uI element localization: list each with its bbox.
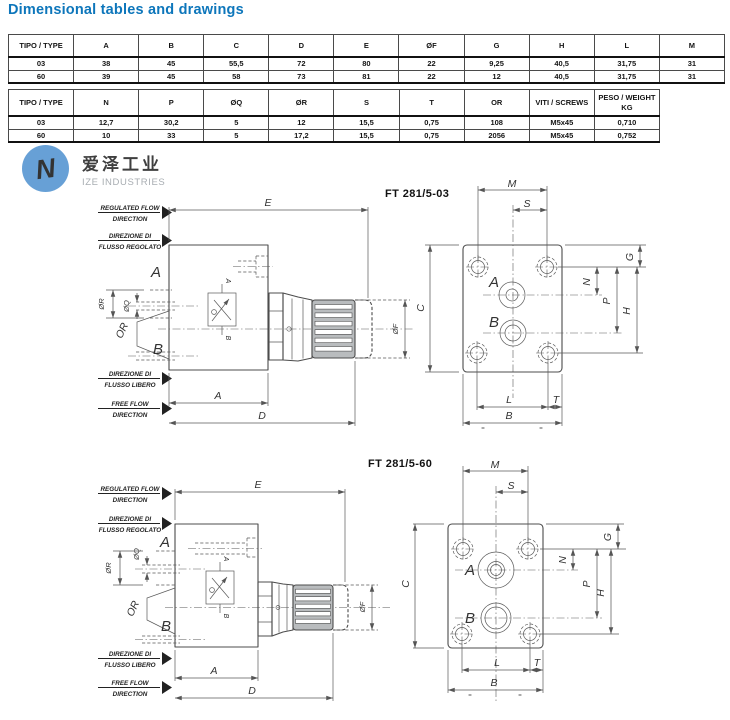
drawing-ft281-5-60: FT 281/5-60 REGULATED FLOW DIRECTION DIR… (0, 450, 730, 720)
dim-label-d: D (258, 410, 266, 422)
svg-text:DIRECTION: DIRECTION (113, 497, 148, 504)
dim-label-g: G (624, 253, 636, 261)
table-cell: 03 (9, 57, 74, 70)
flow-arrow-icon (162, 517, 172, 530)
table-cell: 38 (74, 57, 139, 70)
dim-label-m: M (491, 459, 500, 471)
table-cell: 22 (399, 57, 464, 70)
column-header: ØR (269, 90, 334, 117)
table-cell: 0,752 (594, 129, 659, 142)
flow-arrow-icon (162, 372, 172, 385)
table-row: 03384555,57280229,2540,531,7531 (9, 57, 725, 70)
equal-mark: = (481, 426, 485, 432)
logo-chinese-text: 爱泽工业 (82, 150, 165, 175)
column-header: OR (464, 90, 529, 117)
table-cell: 12,7 (74, 116, 139, 129)
table-cell: 03 (9, 116, 74, 129)
symbol-label-b: B (224, 336, 231, 341)
dim-label-phi-f: ØF (358, 601, 367, 613)
flow-label-direzione-libero: DIREZIONE DI FLUSSO LIBERO (98, 651, 172, 669)
svg-text:DIREZIONE DI: DIREZIONE DI (109, 516, 152, 523)
table-cell: 9,25 (464, 57, 529, 70)
table-cell: 73 (269, 70, 334, 83)
table-cell: 15,5 (334, 116, 399, 129)
dim-label-e: E (254, 479, 262, 491)
svg-text:DIRECTION: DIRECTION (113, 412, 148, 419)
column-header: H (529, 35, 594, 58)
symbol-label-a: A (224, 278, 231, 284)
equal-mark: = (518, 693, 522, 699)
drawing-ft281-5-03: FT 281/5-03 REGULATED FLOW DIRECTION DIR… (0, 180, 730, 450)
table-row: 603945587381221240,531,7531 (9, 70, 725, 83)
table-cell: 0,75 (399, 129, 464, 142)
column-header: E (334, 35, 399, 58)
dim-label-g: G (602, 533, 614, 541)
table-cell: 0,710 (594, 116, 659, 129)
dim-label-a: A (213, 390, 221, 402)
svg-text:DIRECTION: DIRECTION (113, 216, 148, 223)
dimensions-table-2: TIPO / TYPENPØQØRSTORVITI / SCREWSPESO /… (8, 89, 660, 143)
port-label-a: A (488, 274, 499, 291)
table-cell: 12 (269, 116, 334, 129)
table-cell: 10 (74, 129, 139, 142)
port-label-a: A (150, 264, 161, 281)
bolt-holes (465, 255, 560, 365)
equal-mark: = (539, 426, 543, 432)
table-cell: 31 (659, 57, 724, 70)
table-cell: 30,2 (139, 116, 204, 129)
svg-text:DIREZIONE DI: DIREZIONE DI (109, 651, 152, 658)
column-header: ØQ (204, 90, 269, 117)
table-cell: 39 (74, 70, 139, 83)
svg-text:FREE FLOW: FREE FLOW (111, 680, 149, 687)
table-cell: 0,75 (399, 116, 464, 129)
dim-label-h: H (595, 589, 607, 597)
symbol-label-b: B (222, 614, 229, 619)
svg-text:DIREZIONE DI: DIREZIONE DI (109, 233, 152, 240)
table-cell: 31,75 (594, 70, 659, 83)
table-cell: M5x45 (529, 116, 594, 129)
table-cell: 5 (204, 116, 269, 129)
dim-label-p: P (581, 580, 593, 587)
datasheet-page: Dimensional tables and drawings TIPO / T… (0, 0, 730, 720)
flow-label-free-flow: FREE FLOW DIRECTION (98, 680, 172, 698)
svg-text:DIRECTION: DIRECTION (113, 691, 148, 698)
column-header: TIPO / TYPE (9, 35, 74, 58)
port-label-a: A (159, 534, 170, 551)
table-cell: 60 (9, 129, 74, 142)
table-cell: 33 (139, 129, 204, 142)
dim-label-n: N (557, 556, 569, 564)
dim-label-phi-r: ØR (97, 298, 106, 311)
flow-arrow-icon (162, 681, 172, 694)
table-cell: 31,75 (594, 57, 659, 70)
table-cell: 108 (464, 116, 529, 129)
flow-arrow-icon (162, 206, 172, 219)
flow-label-direzione-libero: DIREZIONE DI FLUSSO LIBERO (98, 371, 172, 389)
table-cell: 2056 (464, 129, 529, 142)
dim-label-or: OR (125, 599, 143, 619)
svg-text:FLUSSO LIBERO: FLUSSO LIBERO (104, 382, 155, 389)
flow-arrow-icon (162, 402, 172, 415)
table-cell: 45 (139, 57, 204, 70)
svg-text:FLUSSO REGOLATO: FLUSSO REGOLATO (99, 527, 161, 534)
dim-label-t: T (534, 657, 542, 669)
table-cell: 15,5 (334, 129, 399, 142)
svg-text:FLUSSO REGOLATO: FLUSSO REGOLATO (99, 244, 161, 251)
table-cell: 45 (139, 70, 204, 83)
port-label-a: A (464, 562, 475, 579)
dim-label-c: C (400, 580, 412, 588)
table-cell: 58 (204, 70, 269, 83)
table-header-row: TIPO / TYPENPØQØRSTORVITI / SCREWSPESO /… (9, 90, 660, 117)
column-header: PESO / WEIGHT KG (594, 90, 659, 117)
dim-label-n: N (581, 278, 593, 286)
table-cell: 81 (334, 70, 399, 83)
equal-mark: = (468, 693, 472, 699)
dim-label-phi-f: ØF (391, 323, 400, 335)
dim-label-or: OR (114, 321, 132, 341)
side-view: ØR ØQ OR A B A B (97, 197, 415, 426)
table-cell: 40,5 (529, 57, 594, 70)
flow-label-free-flow: FREE FLOW DIRECTION (98, 401, 172, 419)
dim-label-b: B (505, 410, 512, 422)
flange-view: A B M S C G N P H L T (415, 180, 646, 432)
dim-label-t: T (553, 394, 561, 406)
column-header: P (139, 90, 204, 117)
drawing2-title: FT 281/5-60 (368, 458, 432, 470)
table-cell: 5 (204, 129, 269, 142)
svg-text:FREE FLOW: FREE FLOW (111, 401, 149, 408)
dim-label-h: H (621, 307, 633, 315)
svg-text:DIREZIONE DI: DIREZIONE DI (109, 371, 152, 378)
dim-label-p: P (601, 297, 613, 304)
dim-label-s: S (523, 198, 530, 210)
column-header: ØF (399, 35, 464, 58)
table-cell: 72 (269, 57, 334, 70)
dim-label-c: C (415, 304, 427, 312)
dim-label-s: S (507, 480, 514, 492)
port-label-b: B (465, 610, 475, 627)
drawing1-title: FT 281/5-03 (385, 188, 449, 200)
table-cell: 12 (464, 70, 529, 83)
column-header: D (269, 35, 334, 58)
column-header: A (74, 35, 139, 58)
table-cell: 55,5 (204, 57, 269, 70)
svg-text:FLUSSO LIBERO: FLUSSO LIBERO (104, 662, 155, 669)
column-header: T (399, 90, 464, 117)
column-header: M (659, 35, 724, 58)
table-cell: M5x45 (529, 129, 594, 142)
dim-label-l: L (494, 657, 500, 669)
svg-text:REGULATED FLOW: REGULATED FLOW (101, 486, 161, 493)
flange-view: A B M S C G N P H L T (400, 459, 626, 702)
flow-arrow-icon (162, 652, 172, 665)
dim-label-e: E (264, 197, 272, 209)
column-header: TIPO / TYPE (9, 90, 74, 117)
table-row: 601033517,215,50,752056M5x450,752 (9, 129, 660, 142)
table-cell: 60 (9, 70, 74, 83)
dim-label-phi-q: ØQ (122, 300, 131, 313)
flow-label-direzione-regolato: DIREZIONE DI FLUSSO REGOLATO (98, 516, 172, 534)
table-cell: 40,5 (529, 70, 594, 83)
dim-label-b: B (490, 677, 497, 689)
port-label-b: B (489, 314, 499, 331)
symbol-label-a: A (222, 556, 229, 562)
flow-arrow-icon (162, 487, 172, 500)
column-header: B (139, 35, 204, 58)
column-header: VITI / SCREWS (529, 90, 594, 117)
table-cell: 31 (659, 70, 724, 83)
column-header: N (74, 90, 139, 117)
dim-label-a: A (209, 665, 217, 677)
dim-label-d: D (248, 685, 256, 697)
dim-label-l: L (506, 394, 512, 406)
table-row: 0312,730,251215,50,75108M5x450,710 (9, 116, 660, 129)
dim-label-phi-q: ØQ (132, 548, 141, 561)
flow-label-regulated-flow: REGULATED FLOW DIRECTION (98, 486, 172, 504)
flow-label-regulated-flow: REGULATED FLOW DIRECTION (98, 205, 172, 223)
table-cell: 22 (399, 70, 464, 83)
table-header-row: TIPO / TYPEABCDEØFGHLM (9, 35, 725, 58)
page-title: Dimensional tables and drawings (8, 2, 244, 18)
table-cell: 17,2 (269, 129, 334, 142)
port-label-b: B (161, 618, 171, 635)
column-header: S (334, 90, 399, 117)
column-header: C (204, 35, 269, 58)
column-header: G (464, 35, 529, 58)
dim-label-phi-r: ØR (104, 562, 113, 575)
port-label-b: B (153, 341, 163, 358)
flow-label-direzione-regolato: DIREZIONE DI FLUSSO REGOLATO (98, 233, 172, 251)
dimensions-table-1: TIPO / TYPEABCDEØFGHLM03384555,57280229,… (8, 34, 725, 84)
table-cell: 80 (334, 57, 399, 70)
dim-label-m: M (508, 180, 517, 190)
column-header: L (594, 35, 659, 58)
svg-text:REGULATED FLOW: REGULATED FLOW (101, 205, 161, 212)
